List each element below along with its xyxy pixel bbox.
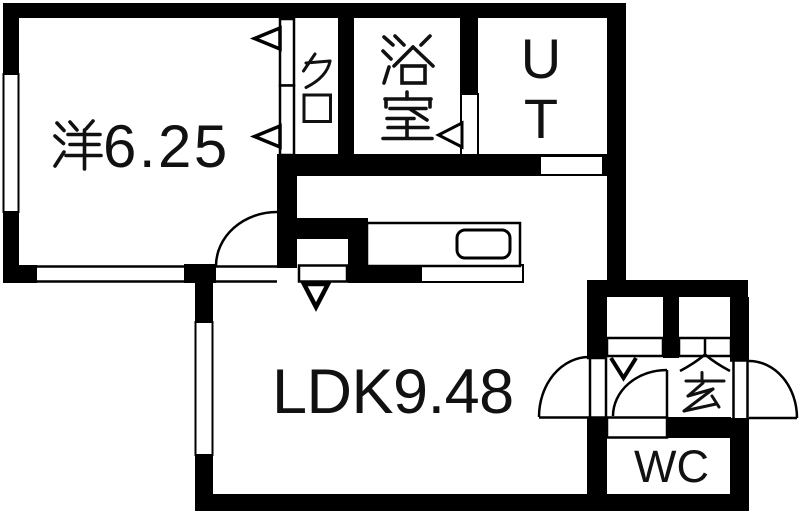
svg-text:WC: WC — [634, 441, 709, 492]
svg-text:6.25: 6.25 — [103, 113, 230, 180]
svg-text:LDK9.48: LDK9.48 — [272, 357, 514, 427]
svg-text:U: U — [521, 27, 561, 90]
svg-text:T: T — [524, 87, 558, 150]
